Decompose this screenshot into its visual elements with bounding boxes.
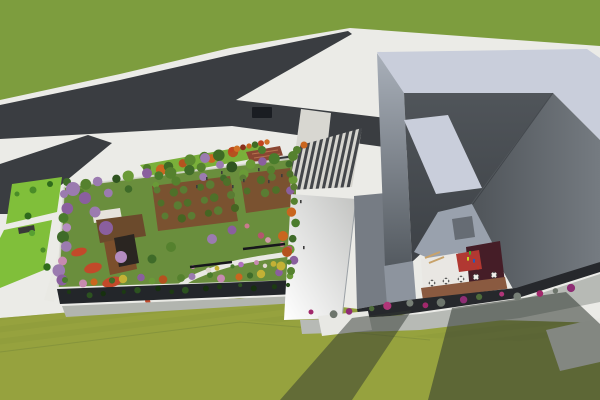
- roof-access-panel: [452, 216, 475, 240]
- building-shadow-east: [428, 292, 600, 400]
- aerial-render-scene: [0, 0, 600, 400]
- rendering-canvas: [0, 0, 600, 400]
- courtyard-lower-wall: [384, 261, 416, 305]
